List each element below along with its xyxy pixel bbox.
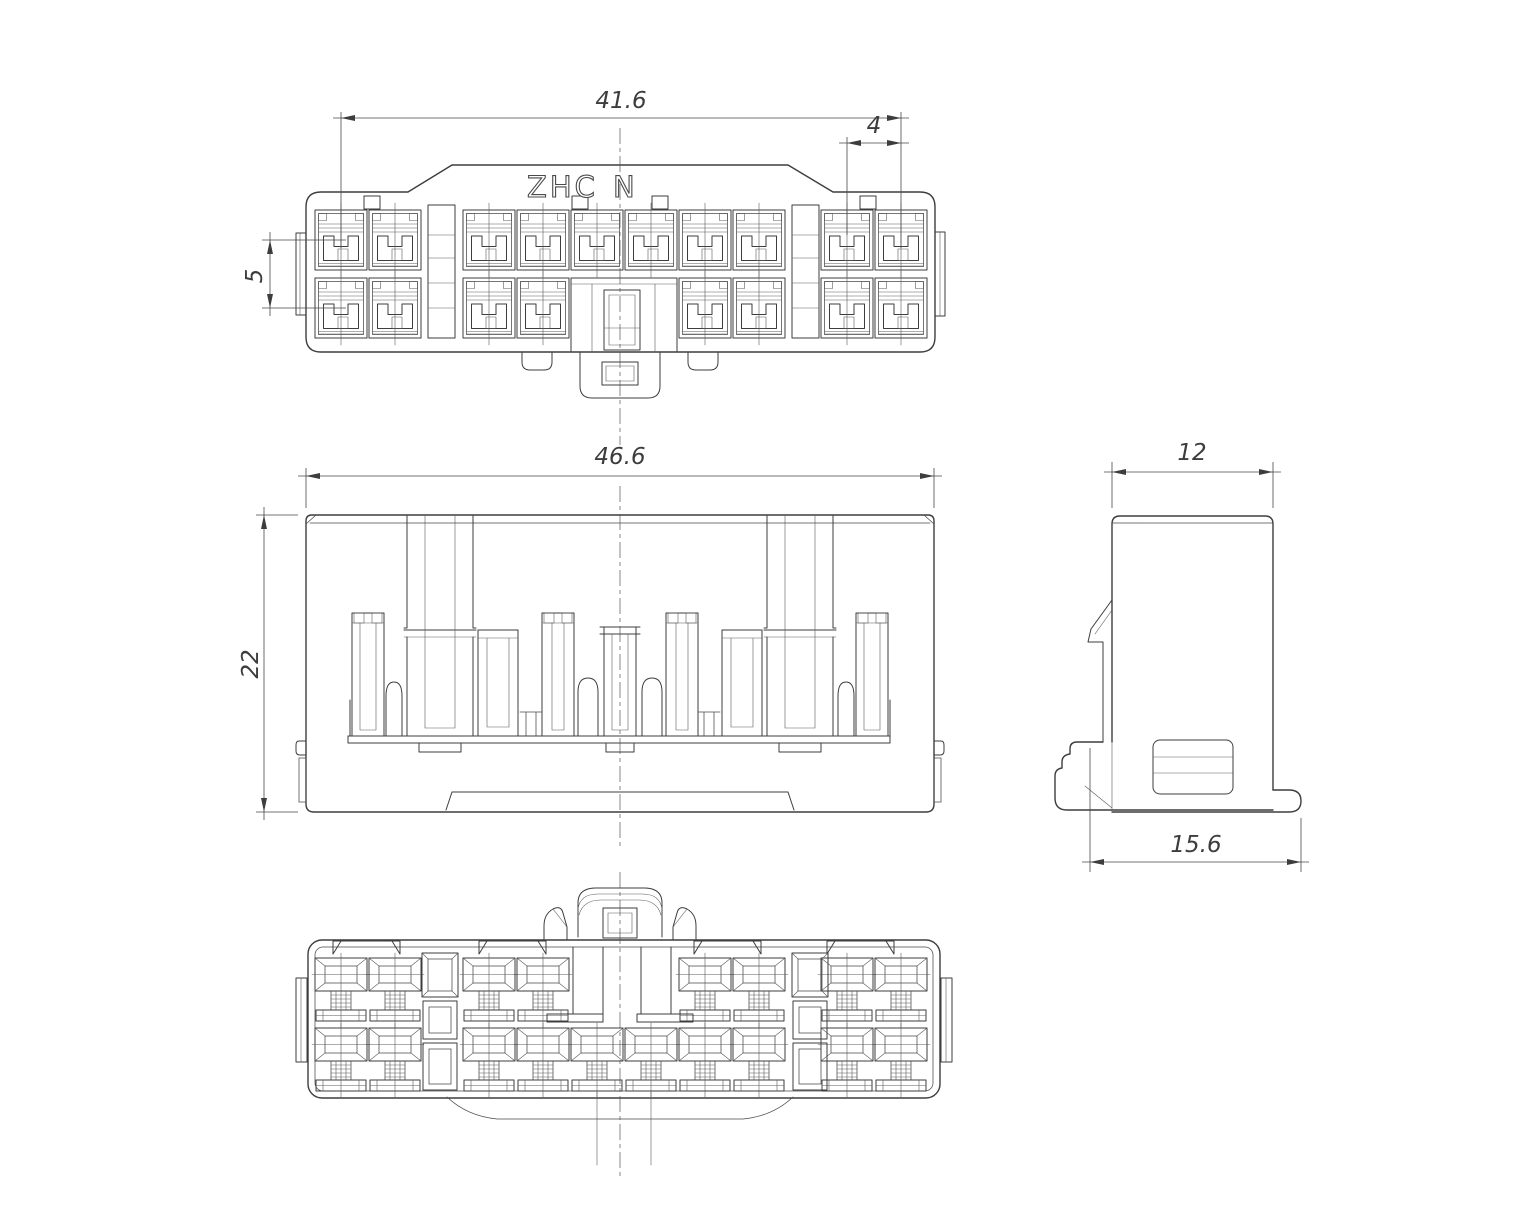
top-view: ZHC N 41.6 4 5: [242, 88, 945, 445]
guide-slots: [333, 941, 894, 954]
svg-text:15.6: 15.6: [1170, 832, 1221, 858]
dim-cavity-pitch: 4: [839, 113, 909, 235]
part-marking-right: N: [613, 170, 638, 204]
drawing-sheet: ZHC N 41.6 4 5 46.6: [0, 0, 1540, 1232]
svg-text:41.6: 41.6: [595, 88, 646, 114]
bottom-view: [296, 872, 952, 1180]
svg-text:12: 12: [1177, 440, 1206, 466]
front-view: 46.6 22: [238, 444, 944, 846]
dim-side-width: 12: [1104, 440, 1281, 508]
terminal-comb: [348, 516, 890, 752]
dim-front-height: 22: [238, 507, 298, 820]
connector-drawing: ZHC N 41.6 4 5 46.6: [0, 0, 1540, 1232]
svg-text:4: 4: [867, 113, 882, 139]
svg-text:46.6: 46.6: [594, 444, 645, 470]
part-marking-left: ZHC: [527, 170, 598, 204]
dim-row-pitch: 5: [242, 232, 346, 316]
side-view: 12 15.6: [1055, 440, 1309, 872]
svg-text:5: 5: [242, 269, 268, 284]
svg-text:22: 22: [238, 649, 264, 678]
dim-top-overall-width: 41.6: [333, 88, 909, 248]
